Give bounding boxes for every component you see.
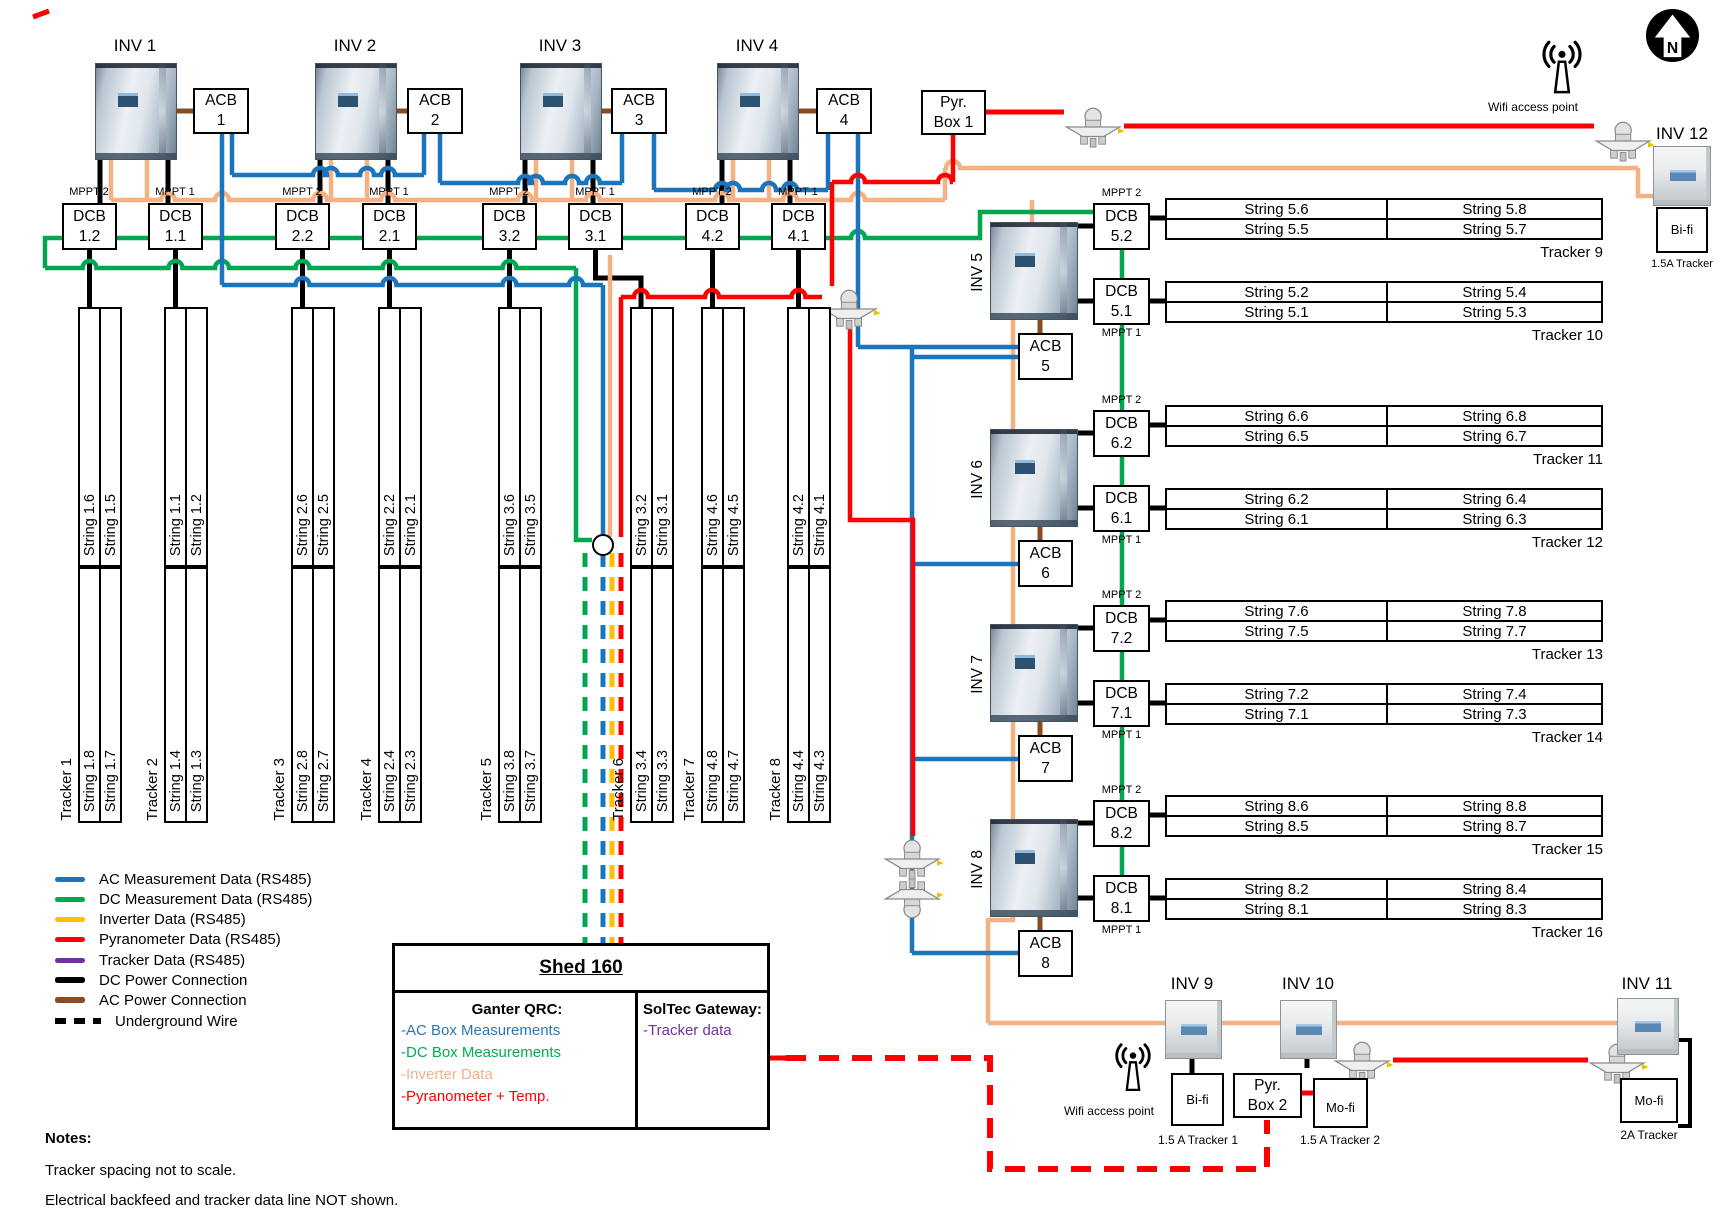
tracker-table-label: Tracker 15 (1403, 841, 1603, 858)
notes-line-1: Tracker spacing not to scale. (45, 1162, 236, 1179)
string-label: String 2.1 (403, 494, 419, 556)
string-table: String 6.6String 6.8String 6.5String 6.7 (1165, 405, 1603, 447)
dcb-mppt-label: MPPT 2 (679, 186, 745, 198)
legend-label: Inverter Data (RS485) (99, 911, 246, 928)
legend-row: AC Power Connection (55, 991, 247, 1009)
tracker-label: Tracker 8 (767, 758, 784, 821)
tracker-string-cell: String 4.6 (701, 307, 724, 567)
inv6-device (990, 429, 1078, 527)
inv9-bifi-label: Bi-fi (1186, 1090, 1208, 1110)
string-label: String 4.2 (791, 494, 807, 556)
dcb-line2: 2.2 (292, 227, 314, 247)
tracker-string-cell: String 2.7 (312, 567, 335, 823)
tracker-string-cell: String 4.4 (787, 567, 810, 823)
string-table: String 8.6String 8.8String 8.5String 8.7 (1165, 795, 1603, 837)
string-table: String 6.2String 6.4String 6.1String 6.3 (1165, 488, 1603, 530)
string-label: String 3.7 (523, 750, 539, 812)
string-label: String 4.5 (726, 494, 742, 556)
tracker-table-label: Tracker 14 (1403, 729, 1603, 746)
legend-label: AC Power Connection (99, 992, 247, 1009)
inv10-device (1280, 1000, 1337, 1059)
pyranometer-icon (885, 840, 943, 879)
wire (850, 328, 913, 836)
pyranometer-icon (822, 290, 880, 329)
string-label: String 4.6 (705, 494, 721, 556)
tracker-string-cell: String 4.2 (787, 307, 810, 567)
string-table: String 7.2String 7.4String 7.1String 7.3 (1165, 683, 1603, 725)
string-table-cell: String 7.1 (1166, 704, 1387, 724)
tracker-table-label: Tracker 16 (1403, 924, 1603, 941)
string-label: String 1.3 (189, 750, 205, 812)
dcb-box: DCB2.1 (362, 203, 417, 250)
inv10-mofi-box: Mo-fi (1313, 1078, 1368, 1128)
tracker-table-label: Tracker 9 (1403, 244, 1603, 261)
string-table-cell: String 8.5 (1166, 816, 1387, 836)
string-label: String 3.2 (634, 494, 650, 556)
dcb-line2: 7.2 (1111, 629, 1133, 649)
notes-heading: Notes: (45, 1130, 92, 1147)
dcb-box: DCB5.2 (1093, 203, 1150, 250)
dcb-line2: 8.1 (1111, 899, 1133, 919)
string-table-cell: String 7.8 (1387, 601, 1602, 621)
string-table-cell: String 8.4 (1387, 879, 1602, 899)
dcb-line2: 3.1 (585, 227, 607, 247)
legend-swatch-solid (55, 917, 85, 922)
inv5-label: INV 5 (969, 253, 987, 292)
inv1-device (95, 63, 177, 160)
string-table-cell: String 8.6 (1166, 796, 1387, 816)
tracker-string-cell: String 4.1 (808, 307, 831, 567)
string-table-cell: String 5.8 (1387, 199, 1602, 219)
legend-label: DC Power Connection (99, 972, 247, 989)
string-table-cell: String 8.2 (1166, 879, 1387, 899)
wifi-access-point-label-top: Wifi access point (1468, 100, 1598, 114)
dcb-box: DCB7.2 (1093, 605, 1150, 652)
acb4-box: ACB4 (816, 88, 872, 134)
acb7-box: ACB7 (1018, 735, 1073, 782)
dcb-mppt-label: MPPT 1 (765, 186, 831, 198)
dcb-line1: DCB (696, 207, 729, 227)
string-table-cell: String 5.7 (1387, 219, 1602, 239)
legend-row: Pyranometer Data (RS485) (55, 930, 281, 948)
string-table-cell: String 7.2 (1166, 684, 1387, 704)
dcb-box: DCB3.2 (482, 203, 537, 250)
inv1-label: INV 1 (95, 36, 175, 56)
notes-line-2: Electrical backfeed and tracker data lin… (45, 1192, 398, 1209)
dcb-box: DCB6.2 (1093, 410, 1150, 457)
dcb-line2: 3.2 (499, 227, 521, 247)
string-label: String 1.6 (82, 494, 98, 556)
acb3-box: ACB3 (611, 88, 667, 134)
wifi-access-point-icon (1114, 1042, 1152, 1094)
shed-soltec-heading: SolTec Gateway: (643, 1001, 767, 1018)
string-table-cell: String 5.4 (1387, 282, 1602, 302)
acb4-line2: 4 (840, 111, 849, 131)
string-table: String 5.2String 5.4String 5.1String 5.3 (1165, 281, 1603, 323)
string-table-cell: String 5.6 (1166, 199, 1387, 219)
string-label: String 1.7 (103, 750, 119, 812)
tracker-label-wrap: Tracker 7 (680, 663, 699, 821)
inv3-label: INV 3 (520, 36, 600, 56)
tracker-string-cell: String 3.5 (519, 307, 542, 567)
wire (832, 175, 953, 182)
tracker-string-cell: String 3.1 (651, 307, 674, 567)
dcb-box: DCB4.1 (771, 203, 826, 250)
inv12-bifi-box: Bi-fi (1656, 207, 1708, 253)
acb3-line1: ACB (623, 91, 655, 111)
tracker-string-cell: String 2.8 (291, 567, 314, 823)
wire (45, 238, 62, 268)
wire (222, 278, 603, 285)
string-label: String 4.1 (812, 494, 828, 556)
pyr-box-2: Pyr. Box 2 (1233, 1073, 1302, 1118)
inv12-label: INV 12 (1651, 124, 1713, 144)
acb-line1: ACB (1030, 337, 1062, 357)
inv5-device (990, 222, 1078, 320)
dcb-line2: 1.1 (165, 227, 187, 247)
tracker-string-cell: String 1.3 (185, 567, 208, 823)
string-label: String 2.4 (382, 750, 398, 812)
tracker-label-wrap: Tracker 5 (477, 663, 496, 821)
inv7-label-wrap: INV 7 (968, 633, 988, 715)
inv12-bifi-label: Bi-fi (1671, 220, 1693, 240)
compass-north-icon: N (1645, 8, 1700, 63)
dcb-box: DCB4.2 (685, 203, 740, 250)
tracker-string-cell: String 3.4 (630, 567, 653, 823)
acb1-box: ACB1 (193, 88, 249, 134)
dcb-line2: 4.2 (702, 227, 724, 247)
tracker-label-wrap: Tracker 2 (143, 663, 162, 821)
string-label: String 2.5 (316, 494, 332, 556)
string-table: String 7.6String 7.8String 7.5String 7.7 (1165, 600, 1603, 642)
dcb-line1: DCB (73, 207, 106, 227)
pyranometer-icon (1596, 122, 1654, 161)
dcb-box: DCB7.1 (1093, 680, 1150, 727)
inv9-bifi-box: Bi-fi (1171, 1073, 1224, 1126)
dcb-mppt-label: MPPT 1 (1093, 534, 1150, 546)
acb1-line1: ACB (205, 91, 237, 111)
string-label: String 2.2 (382, 494, 398, 556)
shed-ganter-qrc-panel: Ganter QRC: -AC Box Measurements -DC Box… (395, 993, 635, 1127)
dcb-line2: 2.1 (379, 227, 401, 247)
string-label: String 2.8 (295, 750, 311, 812)
tracker-string-cell: String 2.4 (378, 567, 401, 823)
dcb-mppt-label: MPPT 2 (269, 186, 335, 198)
tracker-label: Tracker 6 (610, 758, 627, 821)
tracker-table-label: Tracker 11 (1403, 451, 1603, 468)
string-table: String 5.6String 5.8String 5.5String 5.7 (1165, 198, 1603, 240)
string-table-cell: String 7.3 (1387, 704, 1602, 724)
dcb-mppt-label: MPPT 1 (356, 186, 422, 198)
inv8-label: INV 8 (969, 850, 987, 889)
tracker-table-label: Tracker 12 (1403, 534, 1603, 551)
dcb-line1: DCB (493, 207, 526, 227)
string-table-cell: String 7.7 (1387, 621, 1602, 641)
dcb-line1: DCB (1105, 282, 1138, 302)
inv9-tracker-note: 1.5 A Tracker 1 (1150, 1133, 1246, 1147)
inv10-mofi-label: Mo-fi (1326, 1098, 1355, 1118)
wire (945, 161, 1638, 168)
acb-line1: ACB (1030, 544, 1062, 564)
string-label: String 4.7 (726, 750, 742, 812)
inv2-device (315, 63, 397, 160)
acb6-box: ACB6 (1018, 540, 1073, 587)
tracker-string-cell: String 2.2 (378, 307, 401, 567)
inv7-label: INV 7 (969, 655, 987, 694)
tracker-string-cell: String 4.5 (722, 307, 745, 567)
dcb-line1: DCB (579, 207, 612, 227)
dcb-line2: 4.1 (788, 227, 810, 247)
dcb-mppt-label: MPPT 1 (1093, 327, 1150, 339)
string-table-cell: String 8.1 (1166, 899, 1387, 919)
string-label: String 1.5 (103, 494, 119, 556)
tracker-string-cell: String 1.7 (99, 567, 122, 823)
wire (1638, 168, 1653, 196)
tracker-label: Tracker 5 (478, 758, 495, 821)
tracker-table-label: Tracker 10 (1403, 327, 1603, 344)
acb1-line2: 1 (217, 111, 226, 131)
dcb-mppt-label: MPPT 2 (1093, 394, 1150, 406)
legend-swatch-solid (55, 937, 85, 942)
string-table-cell: String 6.1 (1166, 509, 1387, 529)
string-label: String 3.4 (634, 750, 650, 812)
tracker-string-cell: String 2.3 (399, 567, 422, 823)
tracker-label-wrap: Tracker 1 (57, 663, 76, 821)
shed-item-ac: -AC Box Measurements (401, 1020, 633, 1042)
tracker-string-cell: String 1.6 (78, 307, 101, 567)
wire-junction-circle (593, 535, 613, 555)
wire (232, 168, 424, 175)
inv12-device (1653, 146, 1711, 206)
tracker-string-cell: String 1.5 (99, 307, 122, 567)
legend-row: Underground Wire (55, 1012, 238, 1030)
string-label: String 3.6 (502, 494, 518, 556)
string-table-cell: String 7.5 (1166, 621, 1387, 641)
dcb-line1: DCB (1105, 804, 1138, 824)
dcb-box: DCB2.2 (275, 203, 330, 250)
inv4-label: INV 4 (717, 36, 797, 56)
string-table-cell: String 6.7 (1387, 426, 1602, 446)
dcb-box: DCB1.1 (148, 203, 203, 250)
string-table-cell: String 5.1 (1166, 302, 1387, 322)
string-label: String 1.8 (82, 750, 98, 812)
inv8-label-wrap: INV 8 (968, 828, 988, 910)
tracker-label-wrap: Tracker 6 (609, 663, 628, 821)
string-label: String 4.4 (791, 750, 807, 812)
string-label: String 1.2 (189, 494, 205, 556)
inv11-device (1617, 998, 1679, 1055)
dcb-line1: DCB (286, 207, 319, 227)
inv9-label: INV 9 (1160, 974, 1224, 994)
dcb-mppt-label: MPPT 1 (1093, 729, 1150, 741)
legend-label: AC Measurement Data (RS485) (99, 871, 312, 888)
legend-label: DC Measurement Data (RS485) (99, 891, 312, 908)
dcb-mppt-label: MPPT 1 (562, 186, 628, 198)
shed-item-pyranometer: -Pyranometer + Temp. (401, 1086, 633, 1108)
legend-label: Underground Wire (115, 1013, 238, 1030)
wire (621, 290, 822, 297)
acb-line2: 6 (1041, 564, 1050, 584)
tracker-label: Tracker 3 (271, 758, 288, 821)
string-table-cell: String 8.3 (1387, 899, 1602, 919)
legend-row: Inverter Data (RS485) (55, 910, 246, 928)
string-label: String 2.7 (316, 750, 332, 812)
tracker-string-cell: String 1.4 (164, 567, 187, 823)
tracker-string-cell: String 1.2 (185, 307, 208, 567)
string-table-cell: String 6.5 (1166, 426, 1387, 446)
string-table-cell: String 6.8 (1387, 406, 1602, 426)
wire (576, 268, 592, 540)
string-label: String 3.8 (502, 750, 518, 812)
shed-soltec-panel: SolTec Gateway: -Tracker data (635, 993, 767, 1127)
string-label: String 1.1 (168, 494, 184, 556)
string-table-cell: String 5.5 (1166, 219, 1387, 239)
string-table-cell: String 5.3 (1387, 302, 1602, 322)
string-table-cell: String 7.4 (1387, 684, 1602, 704)
dcb-line1: DCB (1105, 609, 1138, 629)
dcb-line1: DCB (1105, 879, 1138, 899)
dcb-line1: DCB (1105, 489, 1138, 509)
pyranometer-icon (885, 879, 943, 918)
inv8-device (990, 819, 1078, 917)
dcb-line2: 6.1 (1111, 509, 1133, 529)
dcb-box: DCB8.1 (1093, 875, 1150, 922)
wire (988, 915, 1013, 1023)
acb-line1: ACB (1030, 739, 1062, 759)
wifi-access-point-label-bottom: Wifi access point (1044, 1104, 1174, 1118)
dcb-line1: DCB (782, 207, 815, 227)
string-table: String 8.2String 8.4String 8.1String 8.3 (1165, 878, 1603, 920)
string-label: String 4.8 (705, 750, 721, 812)
wire (45, 261, 576, 268)
tracker-string-cell: String 3.3 (651, 567, 674, 823)
dcb-box: DCB5.1 (1093, 278, 1150, 325)
tracker-string-cell: String 1.1 (164, 307, 187, 567)
tracker-string-cell: String 4.7 (722, 567, 745, 823)
dcb-box: DCB1.2 (62, 203, 117, 250)
acb2-line2: 2 (431, 111, 440, 131)
string-label: String 3.1 (655, 494, 671, 556)
dcb-mppt-label: MPPT 2 (56, 186, 122, 198)
legend-label: Tracker Data (RS485) (99, 952, 245, 969)
tracker-label: Tracker 2 (144, 758, 161, 821)
tracker-label: Tracker 7 (681, 758, 698, 821)
inv6-label: INV 6 (969, 460, 987, 499)
shed-item-dc: -DC Box Measurements (401, 1042, 633, 1064)
inv11-tracker-note: 2A Tracker (1608, 1128, 1690, 1142)
legend-label: Pyranometer Data (RS485) (99, 931, 281, 948)
tracker-string-cell: String 1.8 (78, 567, 101, 823)
tracker-string-cell: String 3.2 (630, 307, 653, 567)
pyr-box-2-line1: Pyr. (1254, 1076, 1281, 1096)
solar-site-wiring-diagram: Pyr. Box 1 N Wifi access point INV 12 Bi… (0, 0, 1729, 1222)
inv11-label: INV 11 (1615, 974, 1679, 994)
pyranometer-icon (1335, 1042, 1393, 1081)
inv9-device (1165, 1000, 1222, 1059)
dcb-line1: DCB (159, 207, 192, 227)
pyr-box-1: Pyr. Box 1 (921, 90, 986, 135)
dcb-box: DCB8.2 (1093, 800, 1150, 847)
dcb-line2: 7.1 (1111, 704, 1133, 724)
tracker-string-cell: String 4.3 (808, 567, 831, 823)
acb-line2: 8 (1041, 954, 1050, 974)
dcb-line2: 8.2 (1111, 824, 1133, 844)
acb2-line1: ACB (419, 91, 451, 111)
tracker-string-cell: String 3.8 (498, 567, 521, 823)
string-table-cell: String 8.8 (1387, 796, 1602, 816)
acb-line2: 5 (1041, 357, 1050, 377)
pyranometer-icon-flipped (885, 879, 943, 918)
dcb-line2: 6.2 (1111, 434, 1133, 454)
dcb-mppt-label: MPPT 2 (476, 186, 542, 198)
acb-line2: 7 (1041, 759, 1050, 779)
inv5-label-wrap: INV 5 (968, 231, 988, 313)
dcb-line1: DCB (373, 207, 406, 227)
string-table-cell: String 6.3 (1387, 509, 1602, 529)
inv11-mofi-box: Mo-fi (1620, 1078, 1678, 1123)
legend-swatch-solid (55, 997, 85, 1003)
pyr-box-1-line2: Box 1 (934, 113, 974, 133)
dcb-line1: DCB (1105, 207, 1138, 227)
string-table-cell: String 5.2 (1166, 282, 1387, 302)
dcb-box: DCB3.1 (568, 203, 623, 250)
dcb-mppt-label: MPPT 1 (1093, 924, 1150, 936)
legend-swatch-solid (55, 977, 85, 983)
pyranometer-icon (1066, 108, 1124, 147)
dcb-line2: 1.2 (79, 227, 101, 247)
dcb-mppt-label: MPPT 2 (1093, 187, 1150, 199)
legend-row: Tracker Data (RS485) (55, 951, 245, 969)
inv12-tracker-note: 1.5A Tracker (1636, 258, 1728, 270)
string-table-cell: String 6.6 (1166, 406, 1387, 426)
dcb-line1: DCB (1105, 684, 1138, 704)
string-label: String 2.6 (295, 494, 311, 556)
legend-swatch-solid (55, 897, 85, 902)
acb-line1: ACB (1030, 934, 1062, 954)
string-table-cell: String 8.7 (1387, 816, 1602, 836)
legend-swatch-dashed (55, 1018, 101, 1024)
acb4-line1: ACB (828, 91, 860, 111)
dcb-mppt-label: MPPT 1 (142, 186, 208, 198)
tracker-string-cell: String 2.1 (399, 307, 422, 567)
dcb-mppt-label: MPPT 2 (1093, 784, 1150, 796)
legend-row: DC Measurement Data (RS485) (55, 890, 312, 908)
inv11-mofi-label: Mo-fi (1635, 1091, 1664, 1111)
tracker-string-cell: String 2.6 (291, 307, 314, 567)
acb2-box: ACB2 (407, 88, 463, 134)
acb8-box: ACB8 (1018, 930, 1073, 977)
tracker-label: Tracker 1 (58, 758, 75, 821)
pyr-box-1-line1: Pyr. (940, 93, 967, 113)
acb5-box: ACB5 (1018, 333, 1073, 380)
tracker-string-cell: String 4.8 (701, 567, 724, 823)
tracker-label: Tracker 4 (358, 758, 375, 821)
string-label: String 3.5 (523, 494, 539, 556)
compass-letter: N (1667, 40, 1678, 57)
dcb-line1: DCB (1105, 414, 1138, 434)
tracker-string-cell: String 2.5 (312, 307, 335, 567)
string-table-cell: String 7.6 (1166, 601, 1387, 621)
inv7-device (990, 624, 1078, 722)
tracker-table-label: Tracker 13 (1403, 646, 1603, 663)
dcb-line2: 5.2 (1111, 227, 1133, 247)
shed-160-box: Shed 160 Ganter QRC: -AC Box Measurement… (392, 943, 770, 1130)
wifi-access-point-icon (1541, 40, 1583, 96)
shed-item-inverter: -Inverter Data (401, 1064, 633, 1086)
tracker-string-cell: String 3.6 (498, 307, 521, 567)
string-label: String 3.3 (655, 750, 671, 812)
tracker-string-cell: String 3.7 (519, 567, 542, 823)
